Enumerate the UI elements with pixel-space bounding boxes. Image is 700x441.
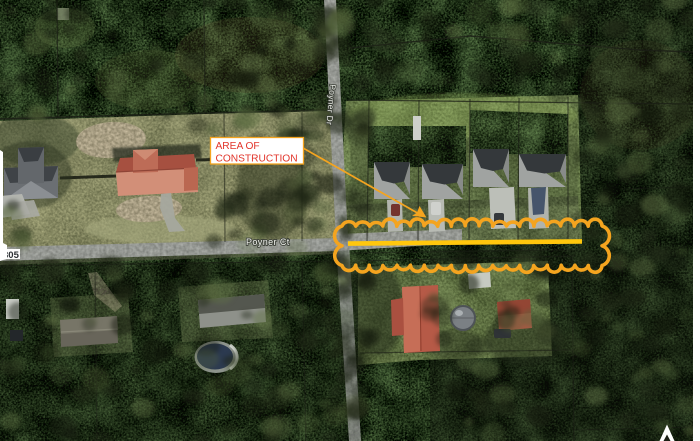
svg-text:Poyner Ct: Poyner Ct bbox=[246, 237, 290, 247]
svg-text:CONSTRUCTION: CONSTRUCTION bbox=[216, 154, 298, 165]
svg-text:AREA OF: AREA OF bbox=[216, 141, 260, 152]
